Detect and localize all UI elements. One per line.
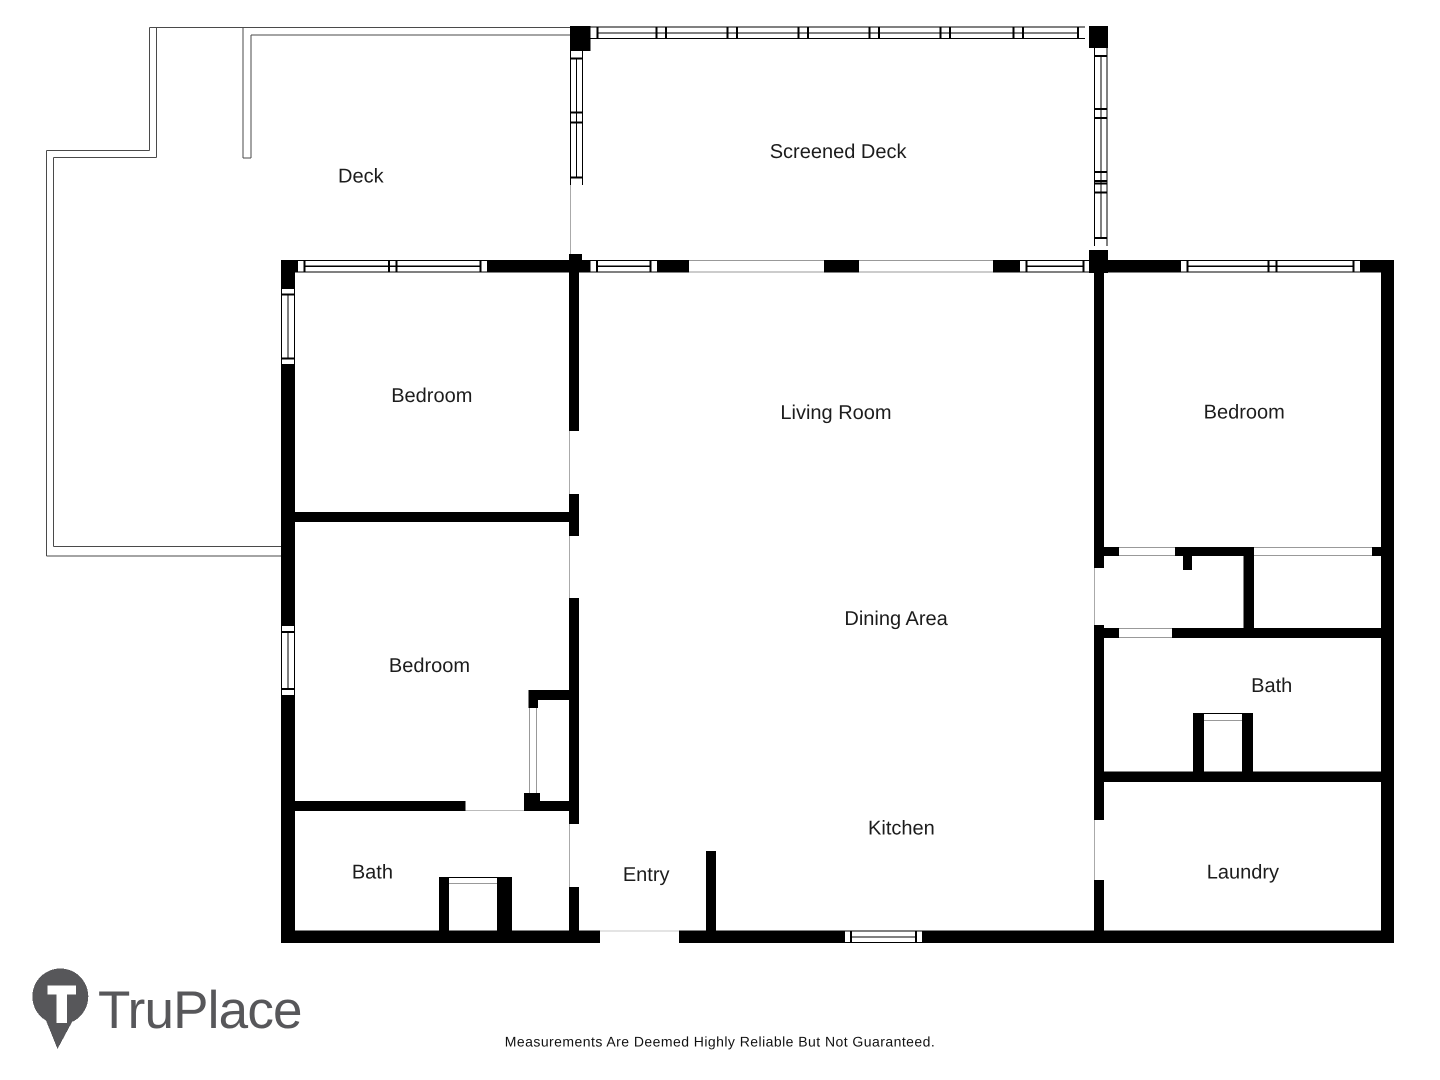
svg-text:Living Room: Living Room [780,402,891,424]
svg-text:Bath: Bath [352,861,393,883]
svg-text:Entry: Entry [623,864,670,886]
svg-text:TruPlace: TruPlace [98,981,302,1040]
svg-text:Bedroom: Bedroom [389,655,470,677]
svg-text:Bedroom: Bedroom [391,385,472,407]
svg-text:Bedroom: Bedroom [1204,402,1285,424]
svg-text:Dining Area: Dining Area [844,608,948,630]
svg-text:Laundry: Laundry [1207,862,1279,884]
svg-text:Deck: Deck [338,166,385,188]
svg-text:Kitchen: Kitchen [868,818,935,840]
svg-text:Screened Deck: Screened Deck [770,141,908,163]
svg-text:Measurements Are Deemed Highly: Measurements Are Deemed Highly Reliable … [505,1034,935,1050]
svg-text:Bath: Bath [1251,675,1292,697]
